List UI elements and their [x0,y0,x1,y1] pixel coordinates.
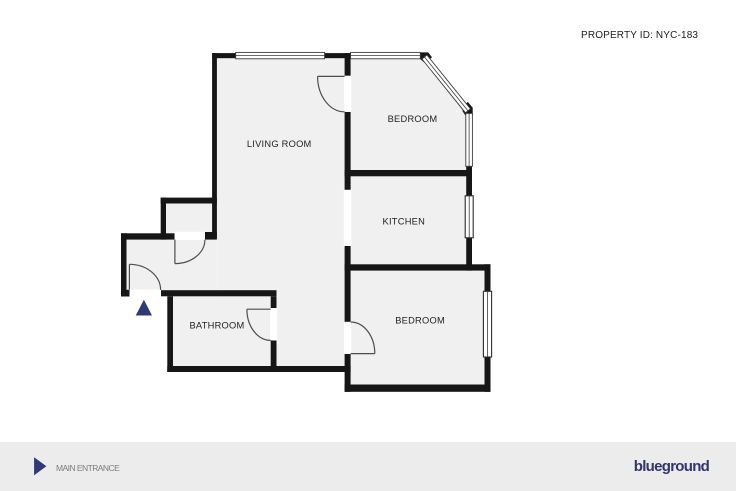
svg-text:BATHROOM: BATHROOM [189,320,244,330]
svg-text:LIVING ROOM: LIVING ROOM [247,139,312,149]
svg-text:BEDROOM: BEDROOM [395,316,445,326]
svg-text:KITCHEN: KITCHEN [383,217,426,227]
svg-text:BEDROOM: BEDROOM [388,114,438,124]
